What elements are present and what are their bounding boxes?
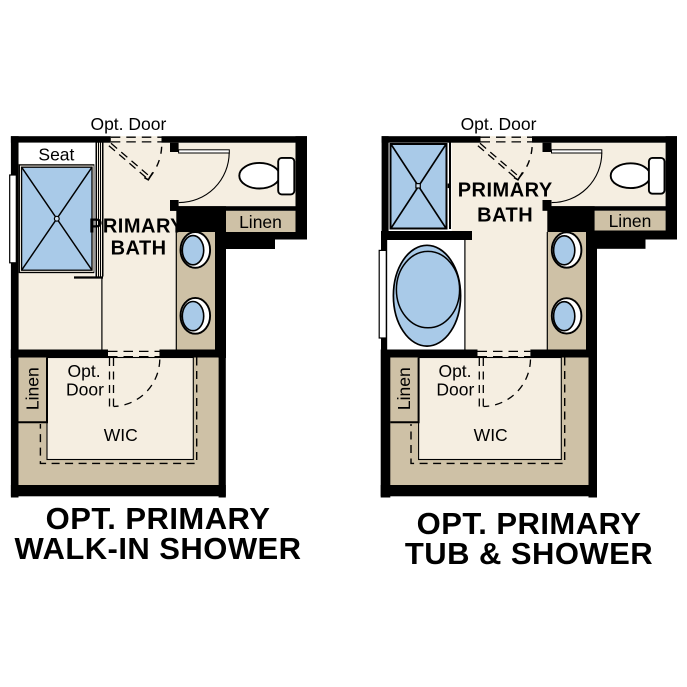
svg-text:Opt.: Opt. — [438, 361, 471, 381]
svg-text:TUB & SHOWER: TUB & SHOWER — [405, 536, 653, 571]
svg-text:Door: Door — [436, 379, 474, 399]
svg-text:Linen: Linen — [239, 212, 282, 232]
svg-text:PRIMARY: PRIMARY — [458, 180, 553, 202]
svg-text:WIC: WIC — [474, 425, 508, 445]
svg-text:WIC: WIC — [104, 425, 138, 445]
svg-text:Seat: Seat — [38, 145, 74, 165]
svg-text:PRIMARY: PRIMARY — [89, 216, 184, 238]
svg-text:Opt. Door: Opt. Door — [461, 114, 537, 134]
svg-text:Door: Door — [66, 379, 104, 399]
svg-text:Linen: Linen — [609, 211, 652, 231]
svg-text:Opt.: Opt. — [68, 361, 101, 381]
svg-text:WALK-IN SHOWER: WALK-IN SHOWER — [15, 531, 302, 566]
svg-text:BATH: BATH — [477, 205, 533, 227]
svg-text:Linen: Linen — [23, 367, 43, 410]
svg-text:BATH: BATH — [111, 238, 167, 260]
svg-text:Linen: Linen — [394, 367, 414, 410]
svg-text:Opt. Door: Opt. Door — [90, 114, 166, 134]
